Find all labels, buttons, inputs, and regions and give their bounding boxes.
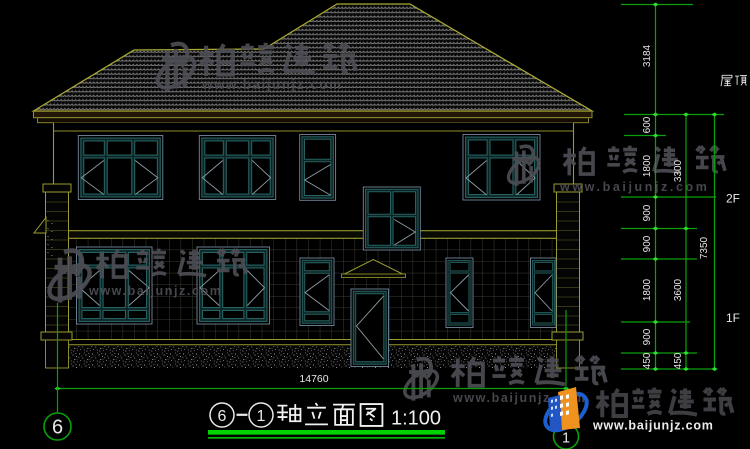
svg-text:3184: 3184 bbox=[642, 44, 653, 67]
svg-text:1F: 1F bbox=[726, 311, 740, 325]
svg-text:1: 1 bbox=[257, 408, 266, 425]
svg-text:1800: 1800 bbox=[642, 154, 653, 177]
svg-text:2F: 2F bbox=[726, 192, 740, 206]
svg-text:3300: 3300 bbox=[673, 159, 684, 182]
svg-text:600: 600 bbox=[642, 116, 653, 133]
svg-text:7350: 7350 bbox=[699, 236, 710, 259]
svg-text:450: 450 bbox=[642, 352, 653, 369]
svg-text:www.baijunjz.com: www.baijunjz.com bbox=[592, 419, 714, 433]
svg-text:www.baijunjz.com: www.baijunjz.com bbox=[88, 284, 222, 298]
svg-text:3600: 3600 bbox=[673, 278, 684, 301]
svg-text:6: 6 bbox=[218, 408, 227, 425]
svg-text:900: 900 bbox=[642, 204, 653, 221]
svg-text:900: 900 bbox=[642, 328, 653, 345]
svg-text:www.baijunjz.com: www.baijunjz.com bbox=[559, 180, 709, 194]
svg-text:900: 900 bbox=[642, 235, 653, 252]
svg-text:1800: 1800 bbox=[642, 278, 653, 301]
svg-text:1:100: 1:100 bbox=[391, 408, 441, 430]
svg-text:450: 450 bbox=[673, 352, 684, 369]
svg-text:6: 6 bbox=[52, 417, 63, 439]
svg-text:www.baijunjz.com: www.baijunjz.com bbox=[201, 77, 343, 92]
svg-text:1: 1 bbox=[562, 431, 570, 447]
svg-text:14760: 14760 bbox=[299, 373, 328, 385]
